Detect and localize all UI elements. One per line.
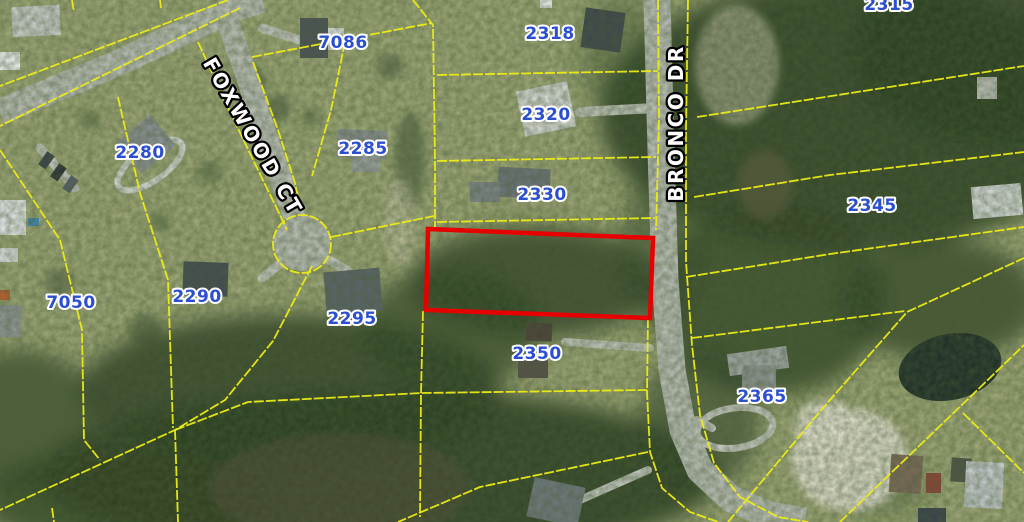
map-canvas: FOXWOOD CT BRONCO DR 7086 2318 2320 2330…	[0, 0, 1024, 522]
parcel-label: 2320	[521, 105, 570, 125]
parcel-label: 2295	[327, 309, 376, 329]
parcel-label: 2285	[338, 139, 387, 159]
parcel-label: 2280	[115, 143, 164, 163]
parcel-line	[160, 0, 161, 8]
parcel-label: 2290	[172, 287, 221, 307]
parcel-label: 2345	[847, 196, 896, 216]
grain-texture	[0, 0, 1024, 522]
parcel-label: 7086	[318, 33, 367, 53]
parcel-label: 2318	[525, 24, 574, 44]
aerial-parcel-map: FOXWOOD CT BRONCO DR 7086 2318 2320 2330…	[0, 0, 1024, 522]
parcel-label: 2350	[512, 344, 561, 364]
parcel-label: 7050	[46, 293, 95, 313]
parcel-label: 2330	[517, 185, 566, 205]
parcel-label: 2315	[864, 0, 913, 15]
street-label-bronco-dr: BRONCO DR	[664, 44, 688, 202]
parcel-label: 2365	[737, 387, 786, 407]
